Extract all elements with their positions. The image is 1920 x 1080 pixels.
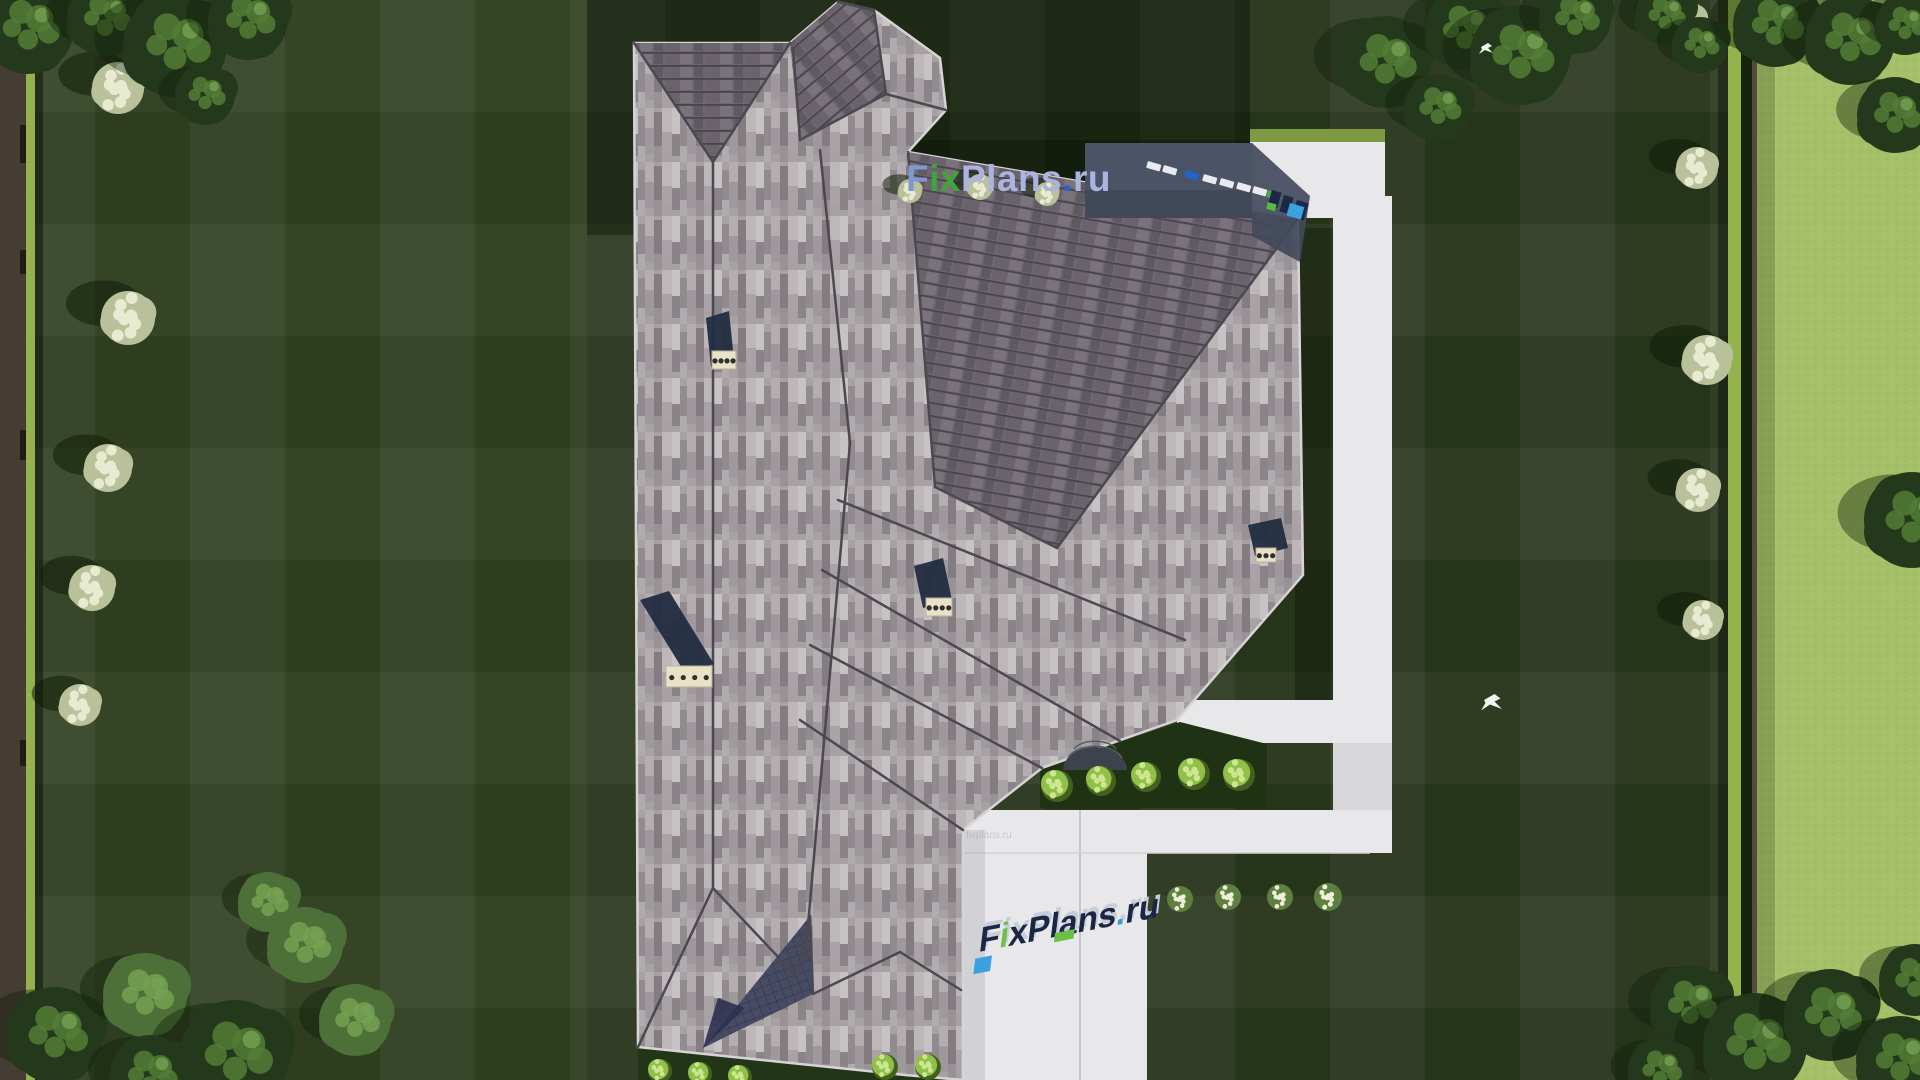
white-bush-bloom bbox=[1695, 148, 1704, 157]
hedge-left-texture bbox=[26, 0, 35, 1080]
green-shrub bbox=[1223, 759, 1255, 791]
tree-canopy-sparkle bbox=[1696, 987, 1709, 1000]
flower-bush-bloom bbox=[1220, 890, 1225, 895]
tree-canopy-highlight bbox=[1583, 13, 1600, 30]
green-shrub-sparkle bbox=[926, 1061, 931, 1066]
green-shrub-sparkle bbox=[1094, 787, 1100, 793]
tree-canopy-highlight bbox=[29, 1025, 48, 1044]
tree-canopy-highlight bbox=[1642, 1064, 1655, 1077]
flower-bush-bloom bbox=[1275, 904, 1280, 909]
chimney-flue-dot bbox=[1263, 553, 1268, 558]
white-bush-bloom bbox=[115, 80, 126, 91]
chimney-flue-dot bbox=[1257, 553, 1262, 558]
chimney-flue-dot bbox=[704, 675, 709, 680]
white-bush-bloom bbox=[89, 595, 99, 605]
white-bush-bloom bbox=[105, 70, 116, 81]
tree-canopy-sparkle bbox=[209, 82, 219, 92]
green-shrub-sparkle bbox=[1135, 770, 1141, 776]
tree-canopy-highlight bbox=[347, 1021, 363, 1037]
hedge-left-shadow bbox=[35, 0, 43, 1080]
tree-canopy-highlight bbox=[261, 903, 274, 916]
green-shrub-sparkle bbox=[1232, 781, 1238, 787]
flower-bush-bloom bbox=[1228, 901, 1233, 906]
tree-canopy-highlight bbox=[189, 89, 201, 101]
chimney-flue-dot bbox=[712, 358, 717, 363]
tree-canopy-highlight bbox=[1509, 57, 1531, 79]
tree-canopy-highlight bbox=[1685, 39, 1696, 50]
tree-canopy-highlight bbox=[1752, 17, 1769, 34]
flower-bush-bloom bbox=[1181, 899, 1186, 904]
fence-post-3 bbox=[20, 250, 27, 274]
white-bush-bloom bbox=[81, 572, 91, 582]
flower-bush-bloom bbox=[1322, 884, 1327, 889]
green-shrub bbox=[1131, 762, 1161, 792]
chimney-flue-dot bbox=[724, 358, 729, 363]
flower-bush-bloom bbox=[1180, 903, 1185, 908]
flower-bush-bloom bbox=[1319, 890, 1324, 895]
tree-canopy-highlight bbox=[1825, 31, 1843, 49]
tree-canopy-sparkle bbox=[1580, 2, 1592, 14]
white-bush-bloom bbox=[112, 330, 124, 342]
chimney-flue-dot bbox=[692, 675, 697, 680]
flower-bush-bloom bbox=[1281, 892, 1286, 897]
tree-canopy-sparkle bbox=[62, 1014, 77, 1029]
white-bush-bloom bbox=[1692, 371, 1703, 382]
flower-bush-bloom bbox=[1272, 890, 1277, 895]
tree-canopy-sparkle bbox=[360, 1004, 372, 1016]
white-bush-bloom bbox=[115, 96, 126, 107]
green-shrub-sparkle bbox=[879, 1072, 884, 1077]
green-shrub-sparkle bbox=[698, 1069, 703, 1074]
tree-canopy-highlight bbox=[154, 989, 174, 1009]
tree-canopy-highlight bbox=[164, 47, 187, 70]
green-shrub-sparkle bbox=[1239, 776, 1245, 782]
green-shrub-sparkle bbox=[1194, 775, 1200, 781]
watermark-main: FixPlans.ru bbox=[906, 158, 1111, 199]
flower-bush-bloom bbox=[1321, 894, 1326, 899]
tree-canopy-sparkle bbox=[1443, 93, 1454, 104]
green-shrub-sparkle bbox=[1094, 766, 1100, 772]
white-bush-bloom bbox=[78, 685, 87, 694]
green-shrub-sparkle bbox=[1236, 768, 1242, 774]
green-shrub-sparkle bbox=[1143, 770, 1149, 776]
green-shrub-sparkle bbox=[885, 1068, 890, 1073]
tree-canopy-highlight bbox=[1419, 101, 1433, 115]
tree-canopy-highlight bbox=[1887, 116, 1904, 133]
white-bush-bloom bbox=[1704, 352, 1715, 363]
green-shrub-sparkle bbox=[1057, 787, 1063, 793]
tree-canopy-highlight bbox=[1890, 1061, 1909, 1080]
tree-canopy-highlight bbox=[1840, 41, 1860, 61]
tree-canopy-highlight bbox=[136, 996, 154, 1014]
fence-post-2 bbox=[20, 125, 27, 163]
white-bush-bloom bbox=[1705, 336, 1716, 347]
fence-line-right bbox=[1752, 0, 1757, 1080]
flower-bush-bloom bbox=[1175, 906, 1180, 911]
fence-post-5 bbox=[20, 740, 27, 766]
chimney-flue-dot bbox=[681, 675, 686, 680]
tree-canopy-highlight bbox=[1726, 1035, 1747, 1056]
tree-canopy-highlight bbox=[198, 96, 211, 109]
green-shrub-sparkle bbox=[738, 1072, 743, 1077]
tree-canopy-highlight bbox=[1360, 53, 1378, 71]
tree-canopy-highlight bbox=[1567, 19, 1583, 35]
white-bush-bloom bbox=[105, 476, 116, 487]
flower-bush-bloom bbox=[1274, 895, 1279, 900]
green-shrub-sparkle bbox=[1228, 767, 1234, 773]
tree-canopy-highlight bbox=[1706, 41, 1719, 54]
flower-bush-bloom bbox=[1181, 894, 1186, 899]
green-shrub-sparkle bbox=[700, 1075, 705, 1080]
white-bush-bloom bbox=[1040, 199, 1045, 204]
white-bush-bloom bbox=[1695, 497, 1705, 507]
green-shrub-sparkle bbox=[660, 1072, 665, 1077]
tree-canopy-highlight bbox=[1493, 45, 1513, 65]
white-bush-bloom bbox=[126, 292, 138, 304]
green-shrub-sparkle bbox=[1054, 779, 1060, 785]
tree-canopy-highlight bbox=[297, 946, 314, 963]
white-bush-bloom bbox=[1694, 175, 1703, 184]
tree-canopy-highlight bbox=[84, 10, 99, 25]
tree-canopy-highlight bbox=[1876, 1051, 1894, 1069]
tree-canopy-sparkle bbox=[243, 1031, 261, 1049]
flower-bush-bloom bbox=[1328, 902, 1333, 907]
green-shrub-sparkle bbox=[692, 1068, 697, 1073]
white-bush-bloom bbox=[1684, 177, 1693, 186]
left-boundary bbox=[0, 0, 43, 1080]
flower-bush-bloom bbox=[1223, 885, 1228, 890]
tree-canopy-highlight bbox=[335, 1013, 349, 1027]
flower-bush-bloom bbox=[1174, 897, 1179, 902]
white-bush-bloom bbox=[1701, 614, 1710, 623]
green-shrub-sparkle bbox=[1050, 770, 1056, 776]
tree-canopy-highlight bbox=[1886, 510, 1905, 529]
tree-canopy-highlight bbox=[146, 35, 167, 56]
tree-canopy-highlight bbox=[1874, 107, 1889, 122]
tree-canopy-sparkle bbox=[310, 928, 322, 940]
tree-canopy-highlight bbox=[1668, 997, 1684, 1013]
green-shrub bbox=[872, 1054, 898, 1080]
tree-canopy-highlight bbox=[247, 1047, 273, 1073]
flower-bush-bloom bbox=[1175, 887, 1180, 892]
tree-canopy-highlight bbox=[1445, 103, 1461, 119]
white-bush-bloom bbox=[1693, 606, 1702, 615]
tree-canopy-sparkle bbox=[156, 1057, 169, 1070]
tree-canopy-highlight bbox=[1694, 46, 1706, 58]
flower-bush bbox=[1314, 883, 1342, 911]
white-bush-bloom bbox=[106, 460, 117, 471]
green-shrub bbox=[1178, 758, 1210, 790]
white-bush-bloom bbox=[1696, 469, 1706, 479]
hedge-right-texture bbox=[1728, 0, 1741, 1080]
white-bush-bloom bbox=[125, 327, 137, 339]
faint-watermark: fixplans.ru bbox=[966, 830, 1012, 841]
chimney-flue-dot bbox=[946, 605, 951, 610]
green-shrub-sparkle bbox=[922, 1072, 927, 1077]
tree-canopy-highlight bbox=[1744, 1047, 1767, 1070]
white-bush-bloom bbox=[90, 581, 100, 591]
flower-bush-bloom bbox=[1229, 897, 1234, 902]
green-shrub-sparkle bbox=[876, 1061, 881, 1066]
white-bush-bloom bbox=[1685, 499, 1695, 509]
chimney-flue-dot bbox=[730, 358, 735, 363]
flower-bush bbox=[1267, 884, 1293, 910]
field-shade-edge bbox=[1757, 0, 1775, 1080]
white-bush-bloom bbox=[1687, 153, 1696, 162]
green-shrub-sparkle bbox=[922, 1054, 927, 1059]
white-bush-bloom bbox=[1695, 343, 1706, 354]
tree-canopy-highlight bbox=[3, 19, 21, 37]
green-shrub-sparkle bbox=[695, 1062, 700, 1067]
tree-canopy-sparkle bbox=[1391, 42, 1406, 57]
chimney-flue-dot bbox=[669, 675, 674, 680]
green-shrub-sparkle bbox=[1187, 780, 1193, 786]
tree-canopy-highlight bbox=[18, 29, 38, 49]
flower-bush-bloom bbox=[1280, 901, 1285, 906]
white-bush-bloom bbox=[1687, 475, 1697, 485]
white-bush-bloom bbox=[125, 310, 137, 322]
green-shrub-sparkle bbox=[655, 1059, 660, 1064]
flower-bush-bloom bbox=[1329, 897, 1334, 902]
white-bush-bloom bbox=[67, 714, 76, 723]
tree-canopy-highlight bbox=[1805, 1006, 1823, 1024]
band-shade bbox=[1333, 743, 1392, 810]
green-shrub-sparkle bbox=[1139, 783, 1145, 789]
chimney-flue-dot bbox=[1270, 553, 1275, 558]
green-shrub-sparkle bbox=[1139, 762, 1145, 768]
chimney-flue-dot bbox=[940, 605, 945, 610]
tree-canopy-highlight bbox=[1649, 9, 1661, 21]
tree-canopy-highlight bbox=[1375, 63, 1395, 83]
tree-canopy-highlight bbox=[313, 940, 331, 958]
white-bush-bloom bbox=[96, 451, 107, 462]
tree-canopy-highlight bbox=[284, 937, 299, 952]
tree-canopy-sparkle bbox=[151, 977, 164, 990]
flower-bush-bloom bbox=[1281, 897, 1286, 902]
tree-canopy-highlight bbox=[1431, 109, 1446, 124]
tree-canopy-highlight bbox=[223, 1057, 247, 1080]
green-shrub-sparkle bbox=[658, 1066, 663, 1071]
tree-canopy-highlight bbox=[1395, 56, 1417, 78]
green-shrub-sparkle bbox=[1050, 792, 1056, 798]
tree-canopy-highlight bbox=[211, 91, 225, 105]
green-shrub bbox=[1086, 766, 1116, 796]
white-bush-bloom bbox=[1704, 368, 1715, 379]
green-shrub-sparkle bbox=[1183, 766, 1189, 772]
flower-bush-bloom bbox=[1275, 885, 1280, 890]
green-shrub-sparkle bbox=[652, 1065, 657, 1070]
white-bush-bloom bbox=[94, 478, 105, 489]
tree-canopy-highlight bbox=[274, 898, 288, 912]
white-bush-bloom bbox=[102, 99, 113, 110]
tree-canopy-sparkle bbox=[1836, 995, 1851, 1010]
tree-canopy-highlight bbox=[256, 14, 275, 33]
white-bush-bloom bbox=[70, 690, 79, 699]
tree-canopy-highlight bbox=[1766, 1038, 1791, 1063]
tree-canopy-highlight bbox=[363, 1015, 380, 1032]
tree-canopy-sparkle bbox=[1906, 1041, 1920, 1055]
tree-canopy-highlight bbox=[1531, 48, 1555, 72]
tree-canopy-sparkle bbox=[272, 889, 282, 899]
green-shrub-sparkle bbox=[883, 1061, 888, 1066]
flower-bush-bloom bbox=[1223, 904, 1228, 909]
tree-canopy-sparkle bbox=[254, 2, 267, 15]
tree-canopy-sparkle bbox=[1664, 1056, 1674, 1066]
green-shrub-sparkle bbox=[879, 1054, 884, 1059]
white-bush-bloom bbox=[1695, 161, 1704, 170]
flower-bush-bloom bbox=[1322, 905, 1327, 910]
white-bush-bloom bbox=[78, 698, 87, 707]
green-shrub bbox=[915, 1054, 941, 1080]
tree-canopy-sparkle bbox=[1704, 33, 1713, 42]
green-shrub-sparkle bbox=[1146, 778, 1152, 784]
green-shrub-sparkle bbox=[1090, 774, 1096, 780]
green-shrub bbox=[1041, 770, 1073, 802]
green-shrub-sparkle bbox=[928, 1068, 933, 1073]
tree-canopy-sparkle bbox=[1900, 98, 1912, 110]
tree-canopy-highlight bbox=[122, 987, 139, 1004]
green-shrub-sparkle bbox=[732, 1071, 737, 1076]
green-shrub-sparkle bbox=[1187, 758, 1193, 764]
chimney-flue-dot bbox=[927, 605, 932, 610]
green-shrub-sparkle bbox=[1046, 778, 1052, 784]
tree-canopy-highlight bbox=[226, 12, 242, 28]
white-bush-bloom bbox=[1701, 601, 1710, 610]
green-shrub-sparkle bbox=[919, 1061, 924, 1066]
flower-bush-bloom bbox=[1222, 895, 1227, 900]
tree-canopy-sparkle bbox=[1669, 2, 1679, 12]
white-bush-bloom bbox=[77, 712, 86, 721]
green-shrub-sparkle bbox=[1098, 774, 1104, 780]
tree-canopy-highlight bbox=[65, 1028, 88, 1051]
green-shrub-sparkle bbox=[1191, 767, 1197, 773]
tree-canopy-highlight bbox=[1889, 19, 1901, 31]
white-bush-bloom bbox=[1700, 626, 1709, 635]
fence-post-4 bbox=[20, 430, 27, 460]
hedge-gap bbox=[1741, 0, 1752, 1080]
lawn-strip-sunlit-top bbox=[1250, 129, 1385, 143]
tree-canopy-highlight bbox=[186, 38, 211, 63]
tree-canopy-highlight bbox=[205, 1044, 227, 1066]
tree-canopy-highlight bbox=[44, 1036, 65, 1057]
green-shrub-sparkle bbox=[1101, 782, 1107, 788]
white-bush-bloom bbox=[106, 445, 117, 456]
chimney-flue-dot bbox=[933, 605, 938, 610]
site-plan-render: fixplans.ru bbox=[0, 0, 1920, 1080]
flower-bush bbox=[1215, 884, 1241, 910]
green-shrub-sparkle bbox=[735, 1065, 740, 1070]
tree-canopy-highlight bbox=[1895, 973, 1909, 987]
white-bush-bloom bbox=[1696, 483, 1706, 493]
chimney-flue-dot bbox=[718, 358, 723, 363]
white-bush-bloom bbox=[78, 598, 88, 608]
flower-bush-bloom bbox=[1329, 892, 1334, 897]
tree-canopy-highlight bbox=[1898, 26, 1911, 39]
green-shrub-sparkle bbox=[1232, 759, 1238, 765]
tree-canopy-highlight bbox=[1820, 1016, 1840, 1036]
flower-bush-bloom bbox=[1172, 892, 1177, 897]
white-bush-bloom bbox=[115, 299, 127, 311]
flower-bush bbox=[1167, 886, 1193, 912]
tree-canopy-highlight bbox=[1555, 11, 1569, 25]
tree-canopy-highlight bbox=[239, 21, 257, 39]
tree-canopy-highlight bbox=[252, 896, 264, 908]
white-bush-bloom bbox=[90, 566, 100, 576]
flower-bush-bloom bbox=[1229, 892, 1234, 897]
white-bush-bloom bbox=[1691, 629, 1700, 638]
tree-canopy-sparkle bbox=[1909, 12, 1919, 22]
